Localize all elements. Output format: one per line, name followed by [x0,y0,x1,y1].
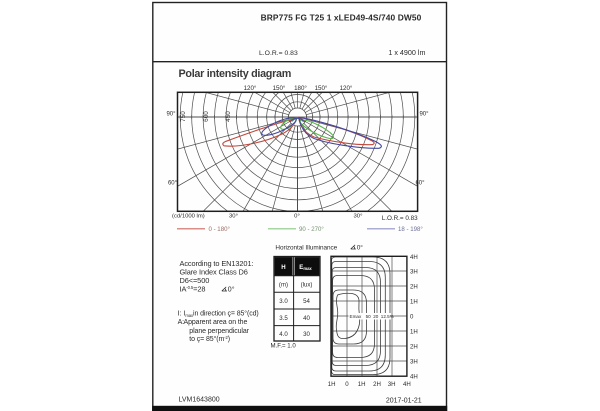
svg-text:0°: 0° [228,285,235,293]
svg-text:1H: 1H [328,381,336,388]
svg-text:Imaxin direction ç= 85°(cd): Imaxin direction ç= 85°(cd) [184,310,259,318]
svg-text:120°: 120° [244,85,257,92]
svg-text:1H: 1H [410,329,418,336]
svg-text:90°: 90° [419,112,429,118]
svg-text:30: 30 [303,331,310,338]
svg-text:4H: 4H [410,254,418,261]
svg-text:20: 20 [373,314,379,319]
svg-text:4.0: 4.0 [279,331,288,338]
svg-text:180°: 180° [294,85,307,92]
svg-text:3H: 3H [410,359,418,366]
svg-text:3H: 3H [388,381,396,388]
svg-text:150°: 150° [273,85,286,92]
svg-text:Horizontal Illuminance: Horizontal Illuminance [275,245,337,252]
svg-text:2017-01-21: 2017-01-21 [386,398,422,405]
svg-text:I:: I: [178,311,182,318]
svg-text:2H: 2H [410,284,418,291]
svg-text:L.O.R.= 0.83: L.O.R.= 0.83 [382,215,418,222]
svg-text:30°: 30° [229,214,238,220]
svg-text:450: 450 [225,111,232,122]
svg-text:12.5%: 12.5% [381,314,394,319]
svg-text:(m): (m) [279,282,288,289]
svg-text:750: 750 [180,111,187,122]
svg-text:L.O.R.= 0.83: L.O.R.= 0.83 [259,50,298,57]
svg-text:4H: 4H [410,374,418,381]
svg-text:2H: 2H [410,344,418,351]
svg-text:90 - 270°: 90 - 270° [299,226,324,233]
svg-text:54: 54 [303,298,310,305]
svg-text:H: H [281,264,285,271]
svg-text:4H: 4H [403,381,411,388]
svg-text:50: 50 [366,314,372,319]
svg-text:IA-0.5=28: IA-0.5=28 [180,284,206,293]
svg-text:3.0: 3.0 [279,298,288,305]
svg-text:BRP775 FG T25 1 xLED49-4S/740: BRP775 FG T25 1 xLED49-4S/740 DW50 [261,13,422,23]
svg-text:60°: 60° [168,181,178,187]
svg-text:(lux): (lux) [301,282,313,289]
svg-text:30°: 30° [354,214,363,220]
svg-text:0°: 0° [357,244,364,252]
svg-text:Emax: Emax [350,314,362,319]
svg-text:M.F.= 1.0: M.F.= 1.0 [271,343,297,350]
svg-text:90°: 90° [166,112,176,118]
svg-text:(cd/1000 lm): (cd/1000 lm) [172,214,205,220]
svg-text:2H: 2H [373,381,381,388]
svg-text:0 - 180°: 0 - 180° [209,226,231,233]
svg-text:1H: 1H [410,299,418,306]
svg-text:150°: 150° [315,85,328,92]
svg-text:0°: 0° [294,214,300,220]
svg-text:1 x 4900 lm: 1 x 4900 lm [388,48,425,57]
svg-text:18 - 198°: 18 - 198° [398,226,423,233]
svg-text:plane perpendicular: plane perpendicular [189,328,249,335]
svg-text:40: 40 [303,315,310,322]
svg-text:1H: 1H [358,381,366,388]
svg-text:to ç= 85°(m-2): to ç= 85°(m-2) [189,335,230,343]
svg-text:3H: 3H [410,269,418,276]
svg-text:60°: 60° [415,181,425,187]
svg-text:Apparent area on the: Apparent area on the [184,319,248,326]
svg-text:120°: 120° [340,85,353,92]
svg-text:LVM1643800: LVM1643800 [179,397,220,404]
svg-text:3.5: 3.5 [279,315,288,322]
svg-text:Polar intensity diagram: Polar intensity diagram [179,68,292,80]
svg-text:600: 600 [203,111,210,122]
